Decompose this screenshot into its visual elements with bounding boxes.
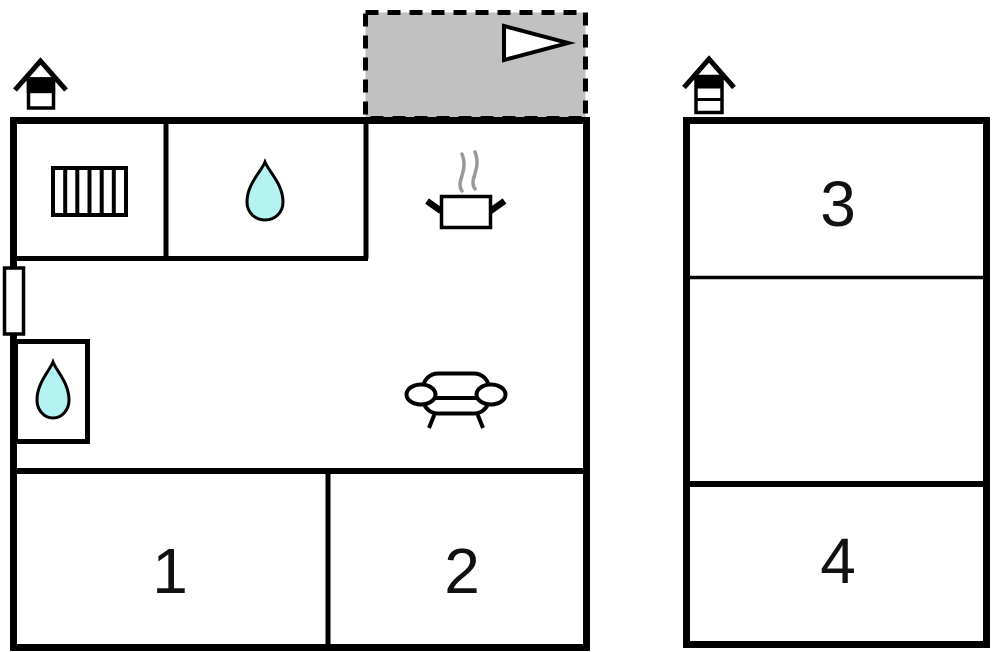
floorplan-drawing: 1 2 3 4	[0, 0, 994, 652]
pot-body	[442, 197, 491, 228]
chimney-icon	[684, 59, 734, 113]
sofa-icon	[407, 374, 506, 429]
floorplan: 1 2 3 4	[0, 0, 994, 652]
room-1-label: 1	[152, 535, 188, 607]
steam-icon	[460, 154, 464, 191]
room-3-label: 3	[820, 168, 856, 240]
pot-handle-left	[427, 201, 441, 211]
terrace-area	[366, 13, 586, 119]
pot-handle-right	[491, 201, 505, 211]
door-opening	[5, 268, 24, 334]
room-4-label: 4	[820, 525, 856, 597]
annex-interior-walls	[690, 278, 983, 485]
terrace-rect	[366, 13, 586, 119]
chimney-icon	[15, 61, 66, 108]
water-drop-icon	[247, 162, 283, 220]
steam-icon	[473, 152, 477, 189]
cooking-pot-icon	[427, 152, 505, 228]
radiator-icon	[53, 168, 126, 215]
room-2-label: 2	[444, 535, 480, 607]
